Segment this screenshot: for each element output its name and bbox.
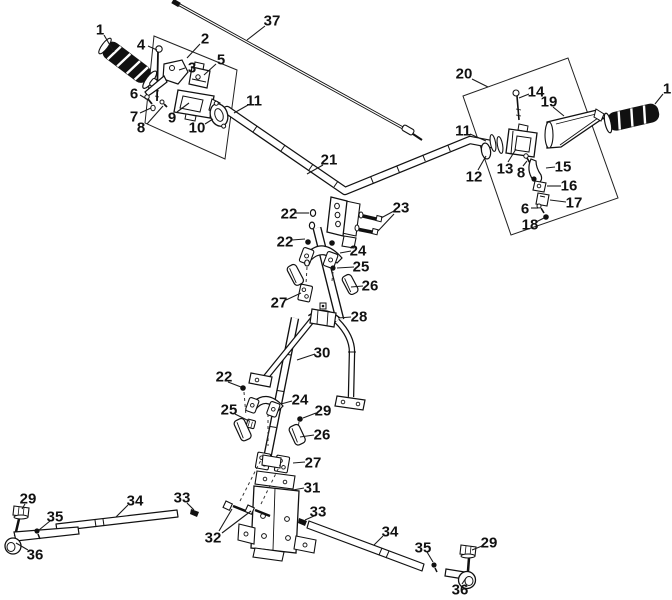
callout-label-11: 11 bbox=[455, 123, 471, 140]
callout-label-26: 26 bbox=[362, 278, 379, 295]
callout-label-5: 5 bbox=[217, 52, 225, 69]
right-grip bbox=[603, 102, 661, 134]
washers-22-upper bbox=[309, 210, 315, 229]
callout-label-32: 32 bbox=[205, 530, 222, 547]
callout-label-12: 12 bbox=[466, 169, 483, 186]
callout-label-29: 29 bbox=[481, 535, 498, 552]
callout-label-21: 21 bbox=[321, 152, 338, 169]
leader-line bbox=[292, 239, 305, 240]
callout-label-8: 8 bbox=[517, 165, 525, 182]
callout-label-23: 23 bbox=[393, 200, 410, 217]
callout-label-18: 18 bbox=[522, 217, 539, 234]
callout-label-36: 36 bbox=[27, 547, 44, 564]
callout-label-34: 34 bbox=[127, 493, 144, 510]
callout-label-4: 4 bbox=[137, 37, 146, 54]
leader-line bbox=[546, 167, 555, 168]
leader-line bbox=[655, 94, 663, 104]
tie-rod-right bbox=[307, 521, 424, 571]
leader-line bbox=[472, 79, 488, 87]
callout-label-1: 1 bbox=[96, 22, 104, 39]
callout-label-17: 17 bbox=[566, 195, 583, 212]
callout-label-26: 26 bbox=[314, 427, 331, 444]
pin-33-left bbox=[190, 509, 199, 517]
callout-label-35: 35 bbox=[415, 540, 432, 557]
callout-label-22: 22 bbox=[277, 234, 294, 251]
callout-label-36: 36 bbox=[452, 582, 469, 599]
callout-label-20: 20 bbox=[456, 66, 473, 83]
callout-label-8: 8 bbox=[137, 120, 145, 137]
callout-label-29: 29 bbox=[20, 491, 37, 508]
screw-8-left bbox=[160, 100, 167, 107]
leader-line bbox=[550, 200, 566, 202]
leader-line bbox=[140, 108, 151, 113]
stem-clamp-upper bbox=[286, 239, 359, 302]
callout-label-25: 25 bbox=[221, 402, 238, 419]
callout-label-33: 33 bbox=[310, 504, 327, 521]
callout-label-33: 33 bbox=[174, 490, 191, 507]
callout-label-6: 6 bbox=[521, 201, 529, 218]
callout-label-30: 30 bbox=[314, 345, 331, 362]
end-washers-11 bbox=[489, 134, 504, 154]
leader-line bbox=[187, 44, 200, 58]
callout-label-3: 3 bbox=[188, 60, 196, 77]
callout-label-24: 24 bbox=[350, 243, 367, 260]
throttle-housing-13 bbox=[506, 124, 537, 157]
callout-label-28: 28 bbox=[351, 309, 368, 326]
pivot-block-16 bbox=[533, 181, 546, 192]
mount-bolt-14 bbox=[513, 90, 521, 120]
throttle-tube-19 bbox=[545, 109, 604, 148]
callout-label-24: 24 bbox=[292, 392, 309, 409]
callout-label-22: 22 bbox=[216, 369, 233, 386]
leader-line bbox=[205, 119, 213, 124]
callout-label-29: 29 bbox=[315, 403, 332, 420]
clamp-bolts-23 bbox=[355, 212, 382, 235]
leader-line bbox=[293, 488, 304, 490]
callout-label-1: 1 bbox=[663, 81, 671, 98]
callout-label-27: 27 bbox=[271, 295, 288, 312]
callout-label-19: 19 bbox=[541, 94, 558, 111]
callout-label-25: 25 bbox=[353, 259, 370, 276]
leader-line bbox=[337, 267, 354, 268]
callout-label-27: 27 bbox=[305, 455, 322, 472]
handlebar-tube bbox=[227, 110, 491, 191]
washer-7 bbox=[151, 105, 155, 111]
leader-line bbox=[297, 354, 315, 360]
callout-layer: 1234567891011372120141911112138151617618… bbox=[16, 13, 671, 599]
clip-35-right bbox=[431, 562, 437, 572]
parts-diagram-svg: 1234567891011372120141911112138151617618… bbox=[0, 0, 672, 600]
nut-18 bbox=[543, 214, 549, 220]
steering-column-30 bbox=[266, 318, 295, 464]
callout-label-10: 10 bbox=[189, 120, 206, 137]
callout-label-22: 22 bbox=[281, 206, 298, 223]
callout-label-11: 11 bbox=[246, 93, 262, 110]
callout-label-15: 15 bbox=[555, 159, 572, 176]
callout-label-6: 6 bbox=[130, 86, 138, 103]
callout-label-34: 34 bbox=[382, 524, 399, 541]
diagram-page: 1234567891011372120141911112138151617618… bbox=[0, 0, 672, 600]
callout-label-2: 2 bbox=[201, 31, 209, 48]
leader-line bbox=[247, 26, 265, 40]
callout-label-31: 31 bbox=[304, 480, 321, 497]
callout-label-16: 16 bbox=[561, 178, 578, 195]
callout-label-9: 9 bbox=[168, 110, 176, 127]
callout-label-13: 13 bbox=[497, 161, 514, 178]
leader-line bbox=[219, 509, 232, 531]
callout-label-35: 35 bbox=[47, 509, 64, 526]
callout-label-37: 37 bbox=[264, 13, 281, 30]
lever-15 bbox=[529, 159, 542, 183]
leader-line bbox=[293, 462, 305, 463]
brace-right-leg bbox=[335, 321, 365, 410]
